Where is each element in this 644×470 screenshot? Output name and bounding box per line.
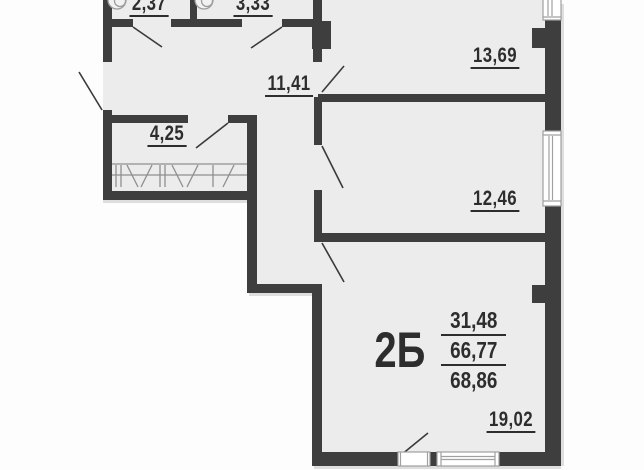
wall-segment	[312, 290, 322, 466]
area-without-balcony-value: 66,77	[448, 336, 498, 364]
floor-plan-drawing	[0, 0, 644, 470]
wall-segment	[247, 115, 257, 293]
room-area-label-top-right: 13,69	[464, 45, 525, 69]
living-area-value: 31,48	[448, 306, 498, 334]
wall-segment	[545, 206, 561, 285]
wall-segment	[282, 19, 313, 27]
pilaster	[532, 285, 561, 303]
room-area-value: 11,41	[265, 73, 313, 97]
apartment-summary: 2Б 31,48 66,77 68,86	[368, 306, 506, 394]
room-area-label-bathroom: 3,33	[229, 0, 278, 17]
wall-segment	[318, 94, 545, 102]
wall-segment	[171, 19, 242, 27]
shadow	[249, 293, 322, 296]
floor-plan: 2,37 3,33 13,69 11,41 4,25 12,46 19,02 2…	[0, 0, 644, 470]
wall-segment	[545, 303, 561, 452]
room-area-label-living: 19,02	[480, 409, 541, 433]
entrance-door-leaf	[79, 72, 102, 110]
room-area-label-middle-right: 12,46	[464, 188, 525, 212]
wall-segment	[314, 190, 322, 235]
wall-segment	[312, 452, 398, 466]
wall-segment	[247, 284, 322, 293]
wall-segment	[314, 233, 545, 242]
room-area-label-wardrobe: 4,25	[143, 123, 192, 147]
room-area-value: 19,02	[487, 409, 536, 433]
wall-column	[312, 21, 331, 49]
wall-segment	[228, 115, 247, 123]
wall-segment	[103, 110, 112, 200]
wall-segment	[112, 19, 133, 27]
wall-segment	[103, 0, 112, 62]
room-area-label-hallway: 11,41	[259, 73, 319, 97]
pilaster	[532, 28, 561, 48]
total-area-value: 68,86	[448, 366, 498, 394]
apartment-area-stack: 31,48 66,77 68,86	[441, 306, 507, 394]
room-area-label-wc: 2,37	[125, 0, 174, 17]
shadow	[103, 200, 257, 203]
shadow	[561, 4, 564, 466]
balcony-door	[398, 452, 430, 466]
room-area-value: 12,46	[471, 188, 520, 212]
room-area-value: 4,25	[147, 123, 186, 147]
apartment-type-label: 2Б	[374, 325, 425, 375]
room-area-value: 3,33	[233, 0, 272, 17]
wall-segment	[103, 191, 257, 200]
wall-segment	[499, 452, 561, 466]
fixture-icon	[202, 0, 213, 7]
room-area-value: 13,69	[471, 45, 520, 69]
room-area-value: 2,37	[129, 0, 168, 17]
wall-segment	[314, 97, 322, 145]
